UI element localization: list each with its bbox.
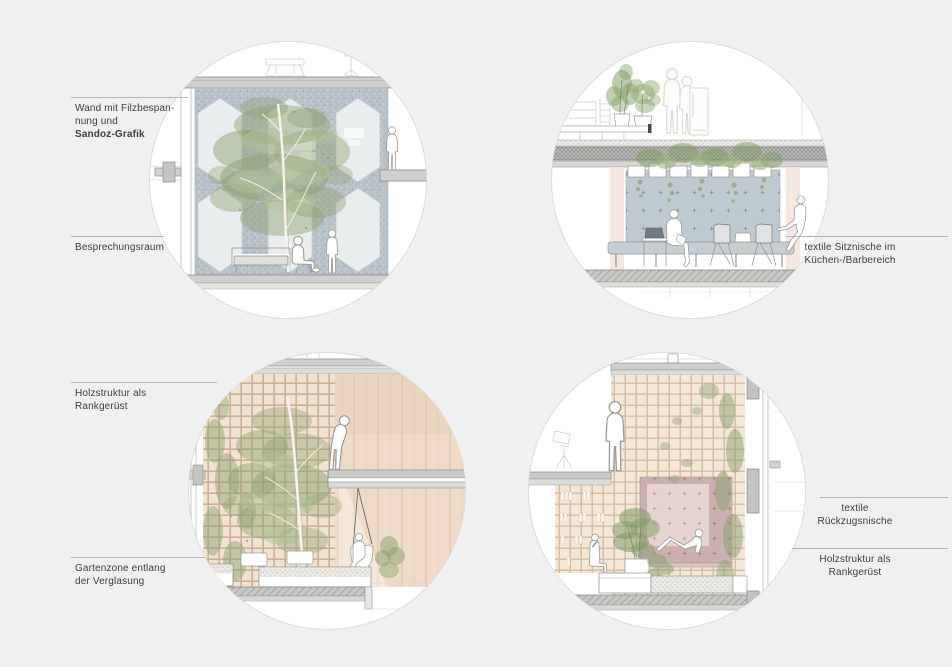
label-line: Rankgerüst [75,400,146,413]
mezzanine-slab [380,170,428,181]
leader-line-retreat-niche [820,497,948,498]
label-line: Küchen-/Barbereich [782,254,918,267]
label-line: textile Sitznische im [782,241,918,254]
label-seating-niche: textile Sitznische im Küchen-/Barbereich [782,241,918,267]
fridge-sketch [690,88,708,137]
vignette-retreat-niche [527,351,807,631]
label-line: Holzstruktur als [792,553,918,566]
top-floor-slab [187,359,467,366]
label-felt-wall: Wand mit Filzbespan- nung und Sandoz-Gra… [75,102,174,141]
leader-line-garden-zone [71,557,205,558]
leader-line-meeting-room [71,236,164,237]
bench-and-planter [599,573,747,593]
left-mezzanine-slab [527,472,611,485]
section-drawing-meeting-room [148,40,428,320]
label-retreat-niche: textile Rückzugsnische [792,502,918,528]
leader-line-seating-niche [786,236,948,237]
label-line: textile [792,502,918,515]
leader-line-wood-structure-br [792,548,948,549]
vignette-felt-wall-meeting-room [148,40,428,320]
label-line: nung und [75,115,174,128]
section-drawing-retreat-niche [527,351,807,631]
section-drawing-garden-zone [187,351,467,631]
label-line: Besprechungsraum [75,241,164,254]
leader-line-wood-structure-bl [71,382,217,383]
top-floor-slab [611,363,747,375]
label-wood-structure-bl: Holzstruktur als Rankgerüst [75,387,146,413]
mezzanine-slab [328,470,467,488]
label-line: Wand mit Filzbespan- [75,102,174,115]
label-garden-zone: Gartenzone entlang der Verglasung [75,562,166,588]
label-line: Gartenzone entlang [75,562,166,575]
top-floor-slab [148,77,428,88]
poster-canvas: Wand mit Filzbespan- nung und Sandoz-Gra… [0,0,952,667]
label-line: Rückzugsnische [792,515,918,528]
label-wood-structure-br: Holzstruktur als Rankgerüst [792,553,918,579]
section-drawing-kitchen-bar [550,40,830,320]
leader-line-felt-wall [71,97,188,98]
label-line: Sandoz-Grafik [75,128,174,141]
bottom-floor-slab [148,275,428,283]
vignette-garden-trellis [187,351,467,631]
label-line: Rankgerüst [792,566,918,579]
roof-vent [668,354,678,363]
vignette-kitchen-bar-niche [550,40,830,320]
label-line: der Verglasung [75,575,166,588]
label-meeting-room: Besprechungsraum [75,241,164,254]
bottom-floor-slab [527,595,761,610]
label-line: Holzstruktur als [75,387,146,400]
bottom-floor-slab [550,270,830,282]
pink-wall-left [610,167,624,277]
